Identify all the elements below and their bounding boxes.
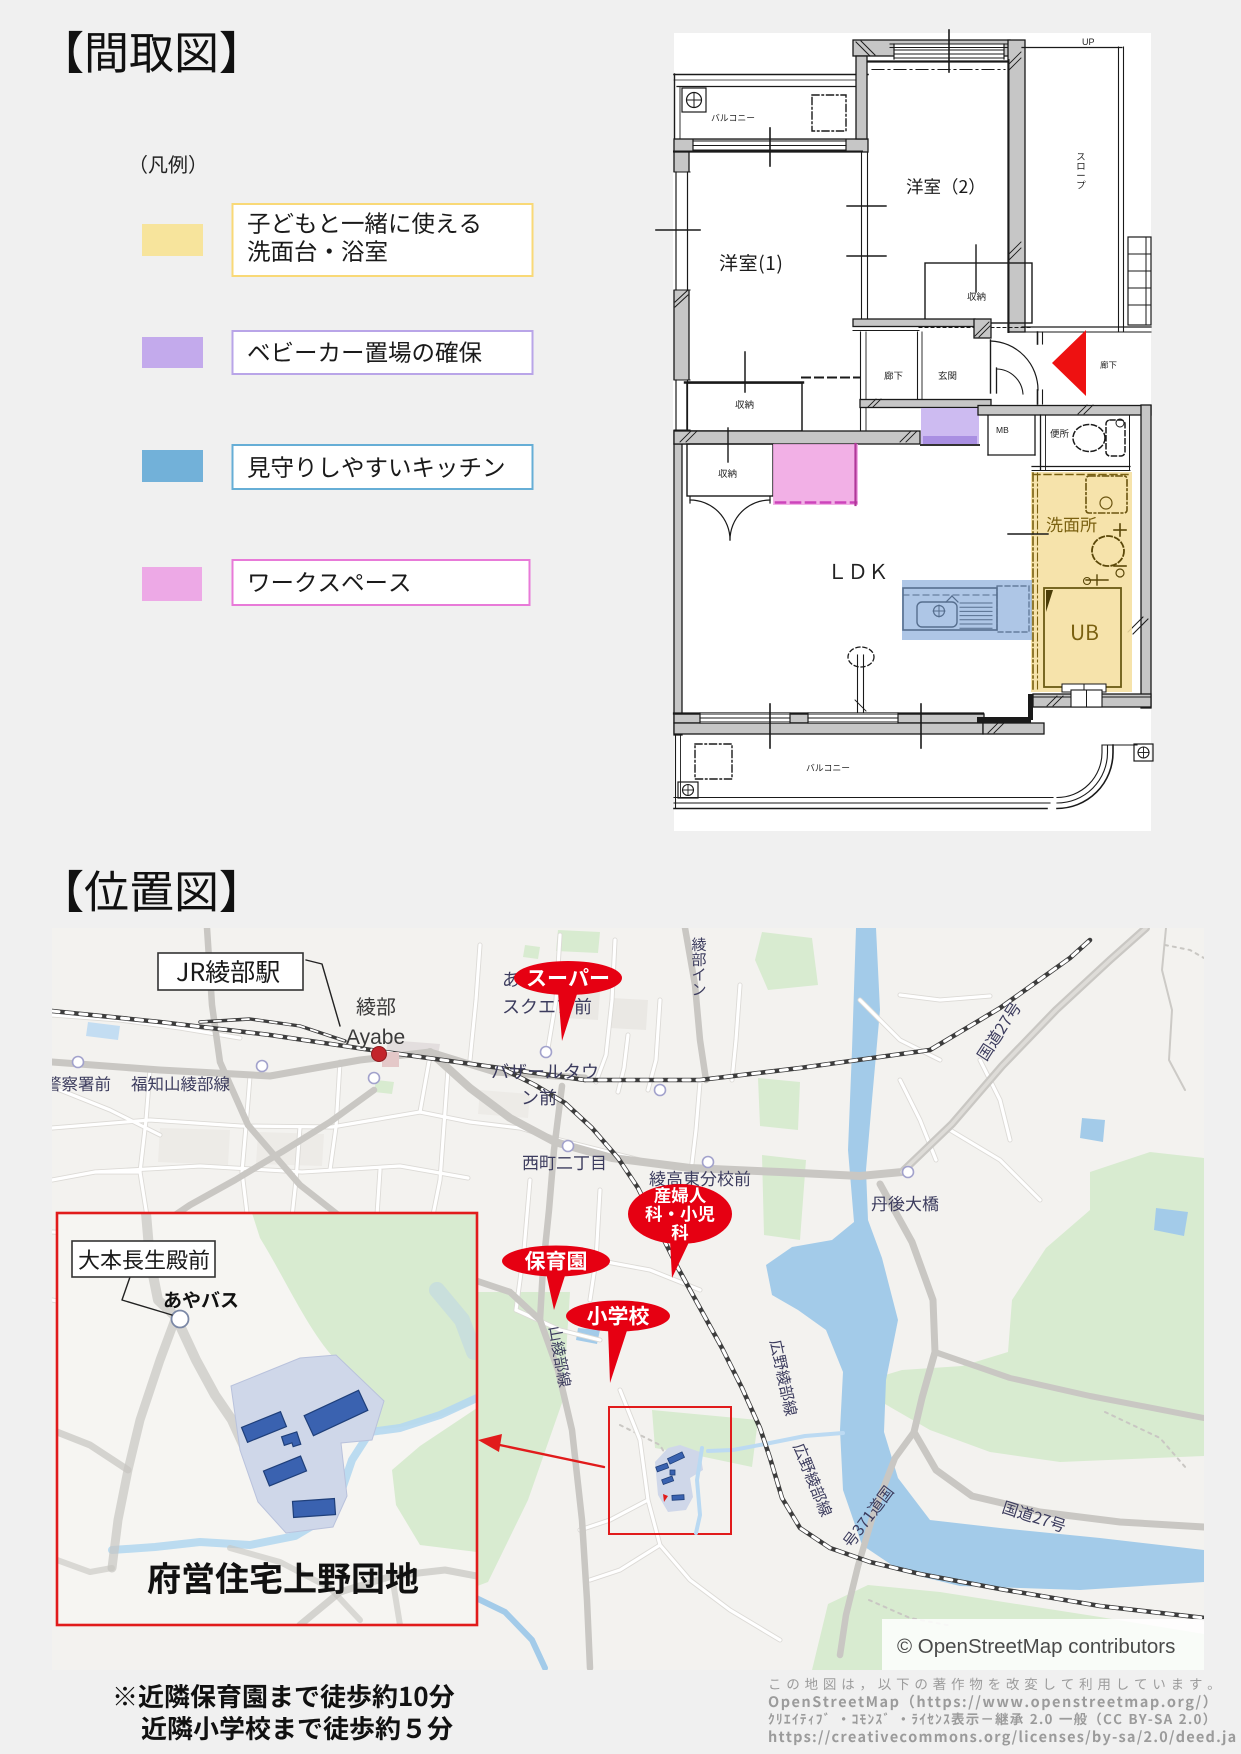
svg-text:UP: UP: [1082, 37, 1095, 47]
svg-text:MB: MB: [996, 425, 1009, 435]
svg-text:Ayabe: Ayabe: [346, 1026, 405, 1049]
svg-text:© OpenStreetMap contributors: © OpenStreetMap contributors: [897, 1635, 1175, 1658]
